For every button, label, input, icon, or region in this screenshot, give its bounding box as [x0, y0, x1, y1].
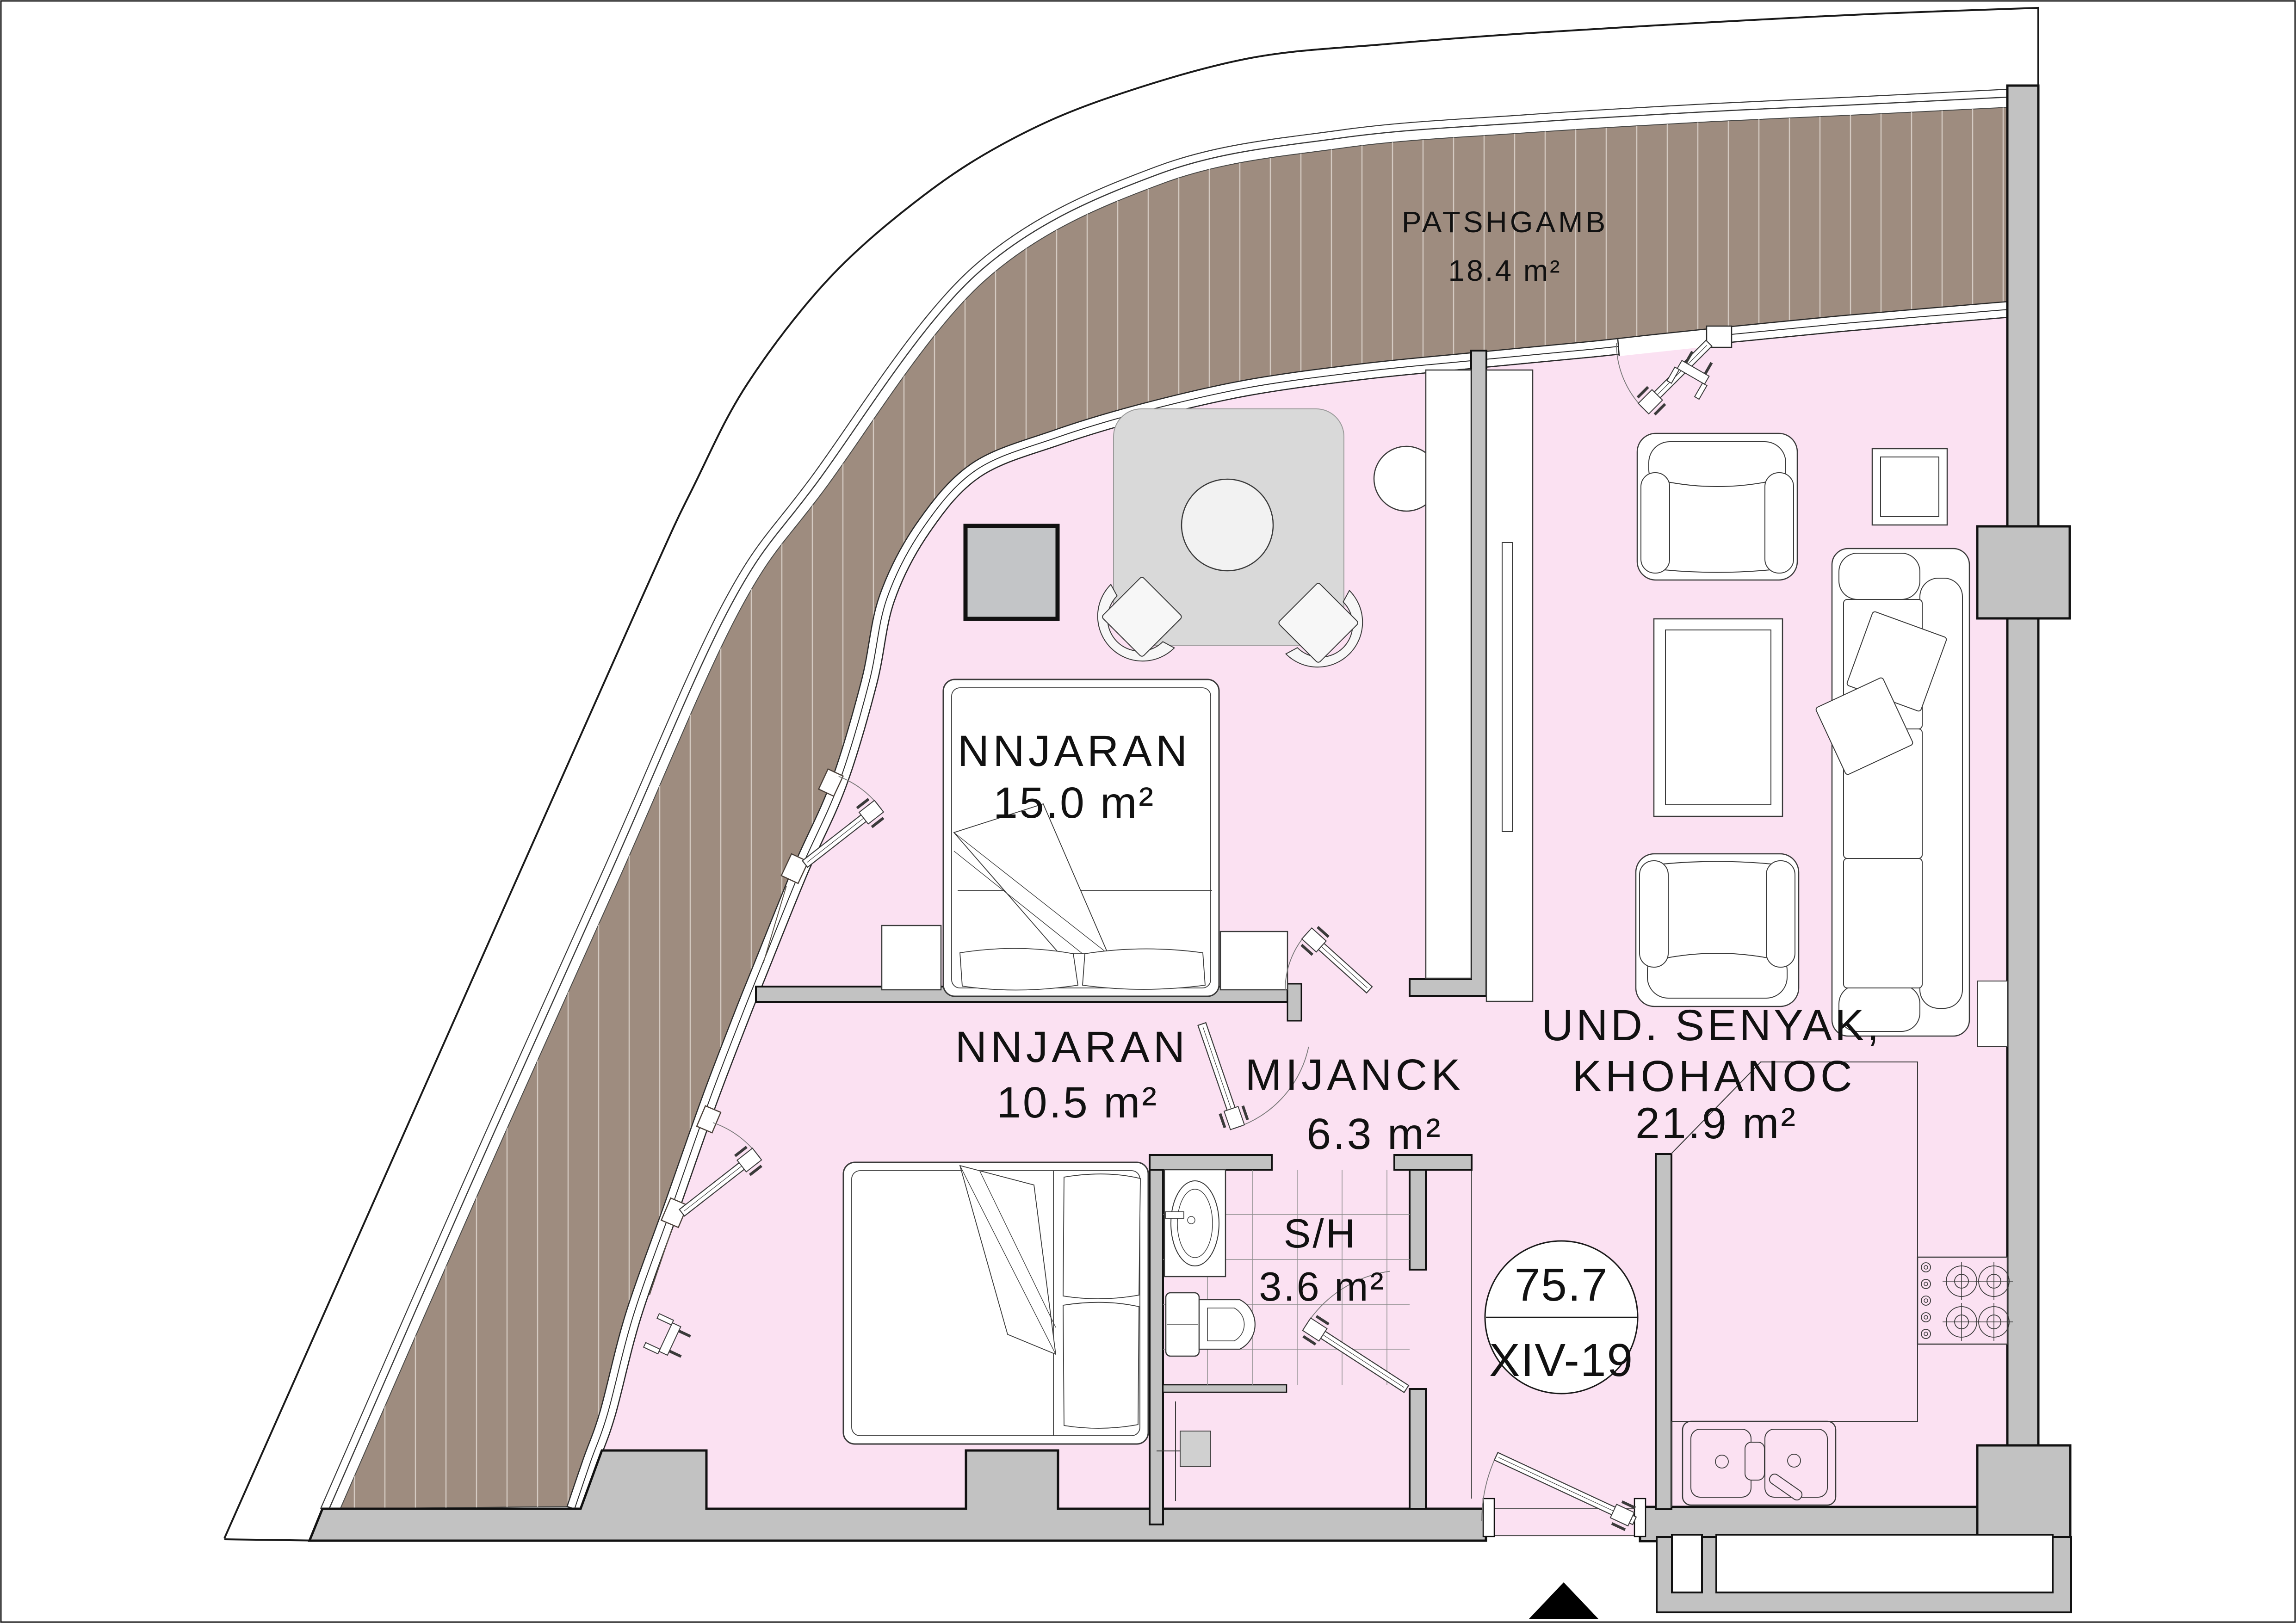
svg-text:21.9 m²: 21.9 m²: [1635, 1099, 1797, 1148]
svg-text:NNJARAN: NNJARAN: [955, 1023, 1189, 1072]
svg-text:PATSHGAMB: PATSHGAMB: [1402, 205, 1608, 239]
svg-text:KHOHANOC: KHOHANOC: [1572, 1052, 1856, 1101]
svg-text:75.7: 75.7: [1515, 1259, 1609, 1311]
svg-text:NNJARAN: NNJARAN: [958, 727, 1191, 776]
svg-text:10.5 m²: 10.5 m²: [996, 1078, 1158, 1127]
svg-text:18.4 m²: 18.4 m²: [1448, 254, 1562, 287]
svg-text:6.3 m²: 6.3 m²: [1306, 1110, 1442, 1159]
svg-text:3.6 m²: 3.6 m²: [1259, 1264, 1385, 1309]
svg-text:XIV-19: XIV-19: [1489, 1334, 1634, 1386]
svg-text:UND. SENYAK,: UND. SENYAK,: [1541, 1001, 1881, 1050]
svg-text:S/H: S/H: [1284, 1210, 1357, 1256]
svg-text:15.0 m²: 15.0 m²: [993, 778, 1155, 827]
svg-text:MIJANCK: MIJANCK: [1245, 1050, 1464, 1099]
